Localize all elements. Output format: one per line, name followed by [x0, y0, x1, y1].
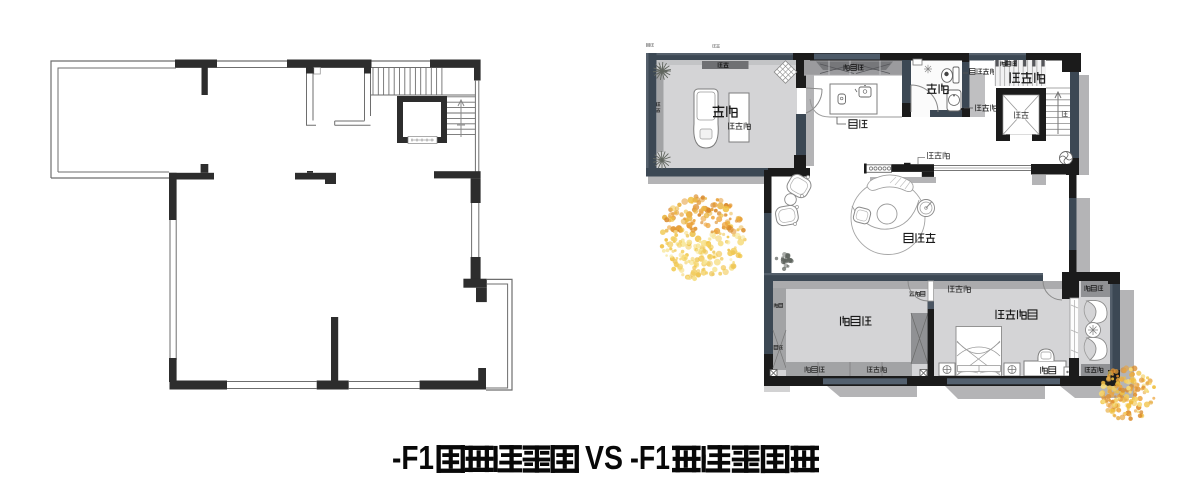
svg-text:-F1: -F1 — [630, 439, 670, 476]
svg-text:VS: VS — [585, 439, 623, 476]
svg-text:-F1: -F1 — [392, 439, 434, 476]
